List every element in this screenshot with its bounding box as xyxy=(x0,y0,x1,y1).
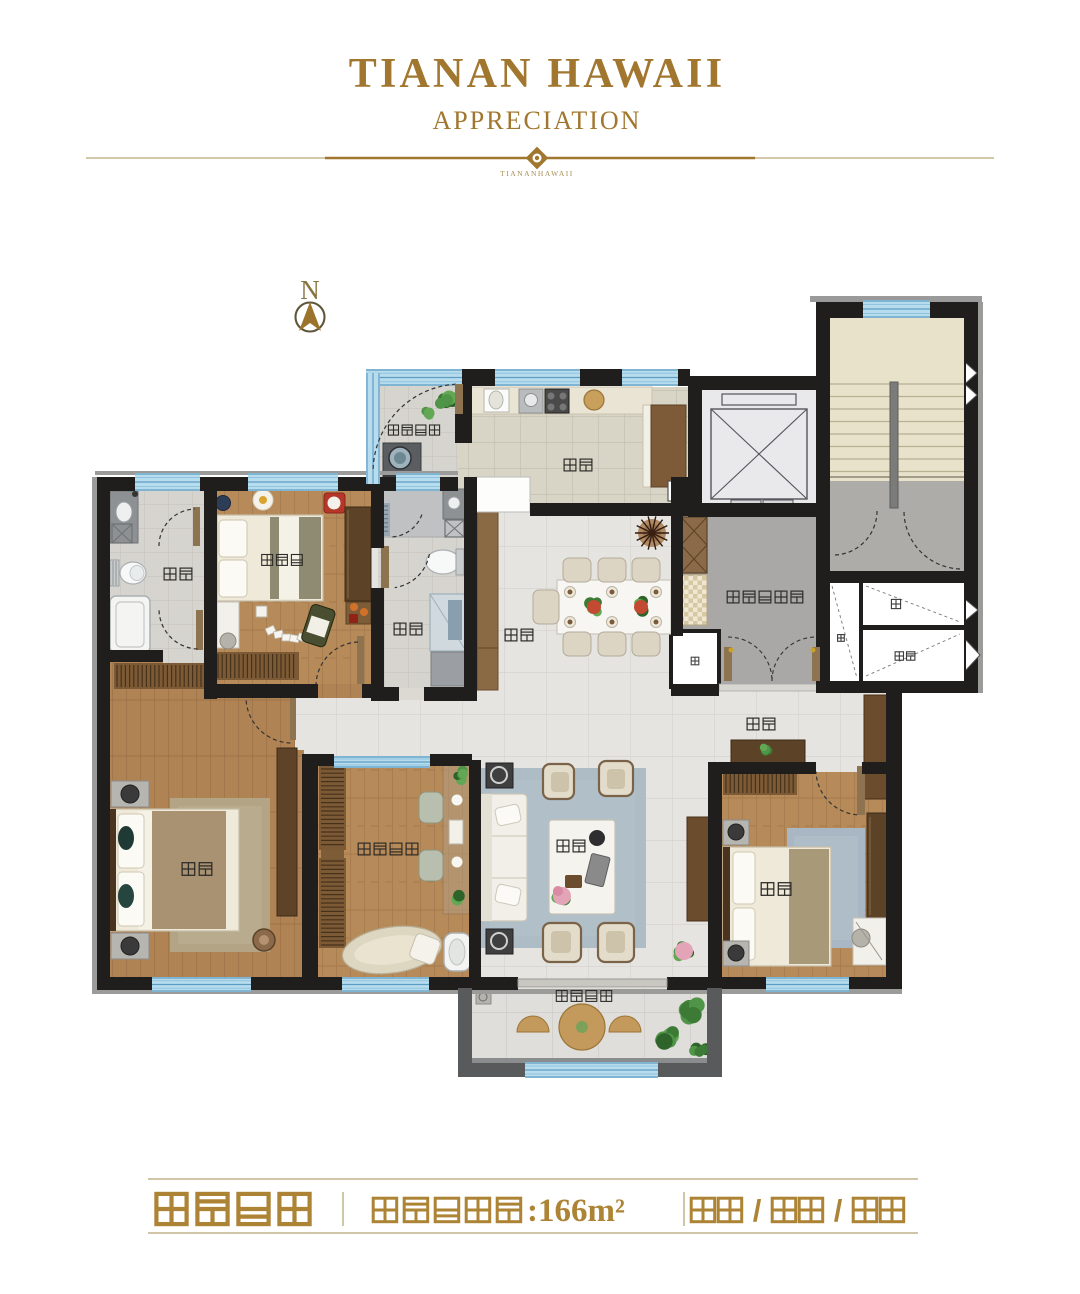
svg-text:TIANANHAWAII: TIANANHAWAII xyxy=(500,169,574,178)
svg-text:/: / xyxy=(753,1193,762,1228)
svg-text:TIANAN HAWAII: TIANAN HAWAII xyxy=(349,51,726,97)
svg-text::166m²: :166m² xyxy=(527,1193,625,1229)
svg-text:/: / xyxy=(834,1193,843,1228)
svg-text:N: N xyxy=(300,275,320,305)
svg-text:APPRECIATION: APPRECIATION xyxy=(433,106,642,135)
